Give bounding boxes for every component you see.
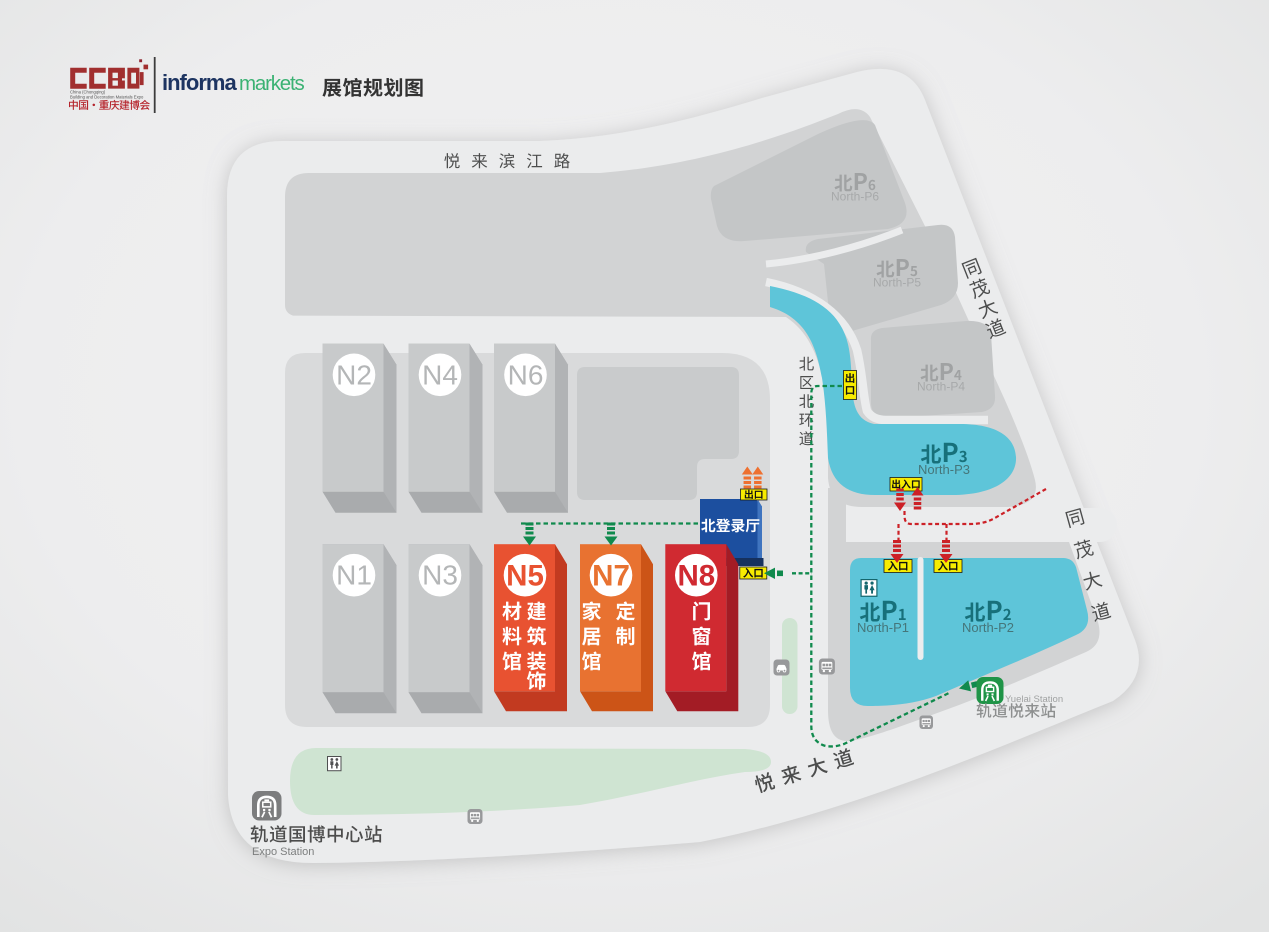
svg-text:informa: informa [162,70,237,95]
svg-text:N3: N3 [422,560,458,591]
svg-text:N8: N8 [677,560,715,593]
svg-text:N1: N1 [336,560,372,591]
svg-text:N7: N7 [592,560,630,593]
svg-text:North-P3: North-P3 [918,462,970,477]
svg-text:North-P2: North-P2 [962,620,1014,635]
svg-text:N6: N6 [508,359,544,390]
svg-text:markets: markets [239,72,304,95]
svg-text:North-P1: North-P1 [857,620,909,635]
svg-text:N4: N4 [422,359,458,390]
svg-text:Building and Decoration Materi: Building and Decoration Materials Expo [70,95,144,100]
svg-text:Yuelai Station: Yuelai Station [1005,694,1063,705]
svg-text:N5: N5 [506,560,544,593]
svg-text:Expo Station: Expo Station [252,846,314,858]
svg-text:North-P6: North-P6 [831,190,879,204]
svg-text:North-P5: North-P5 [873,276,921,290]
svg-text:North-P4: North-P4 [917,380,965,394]
svg-text:N2: N2 [336,359,372,390]
